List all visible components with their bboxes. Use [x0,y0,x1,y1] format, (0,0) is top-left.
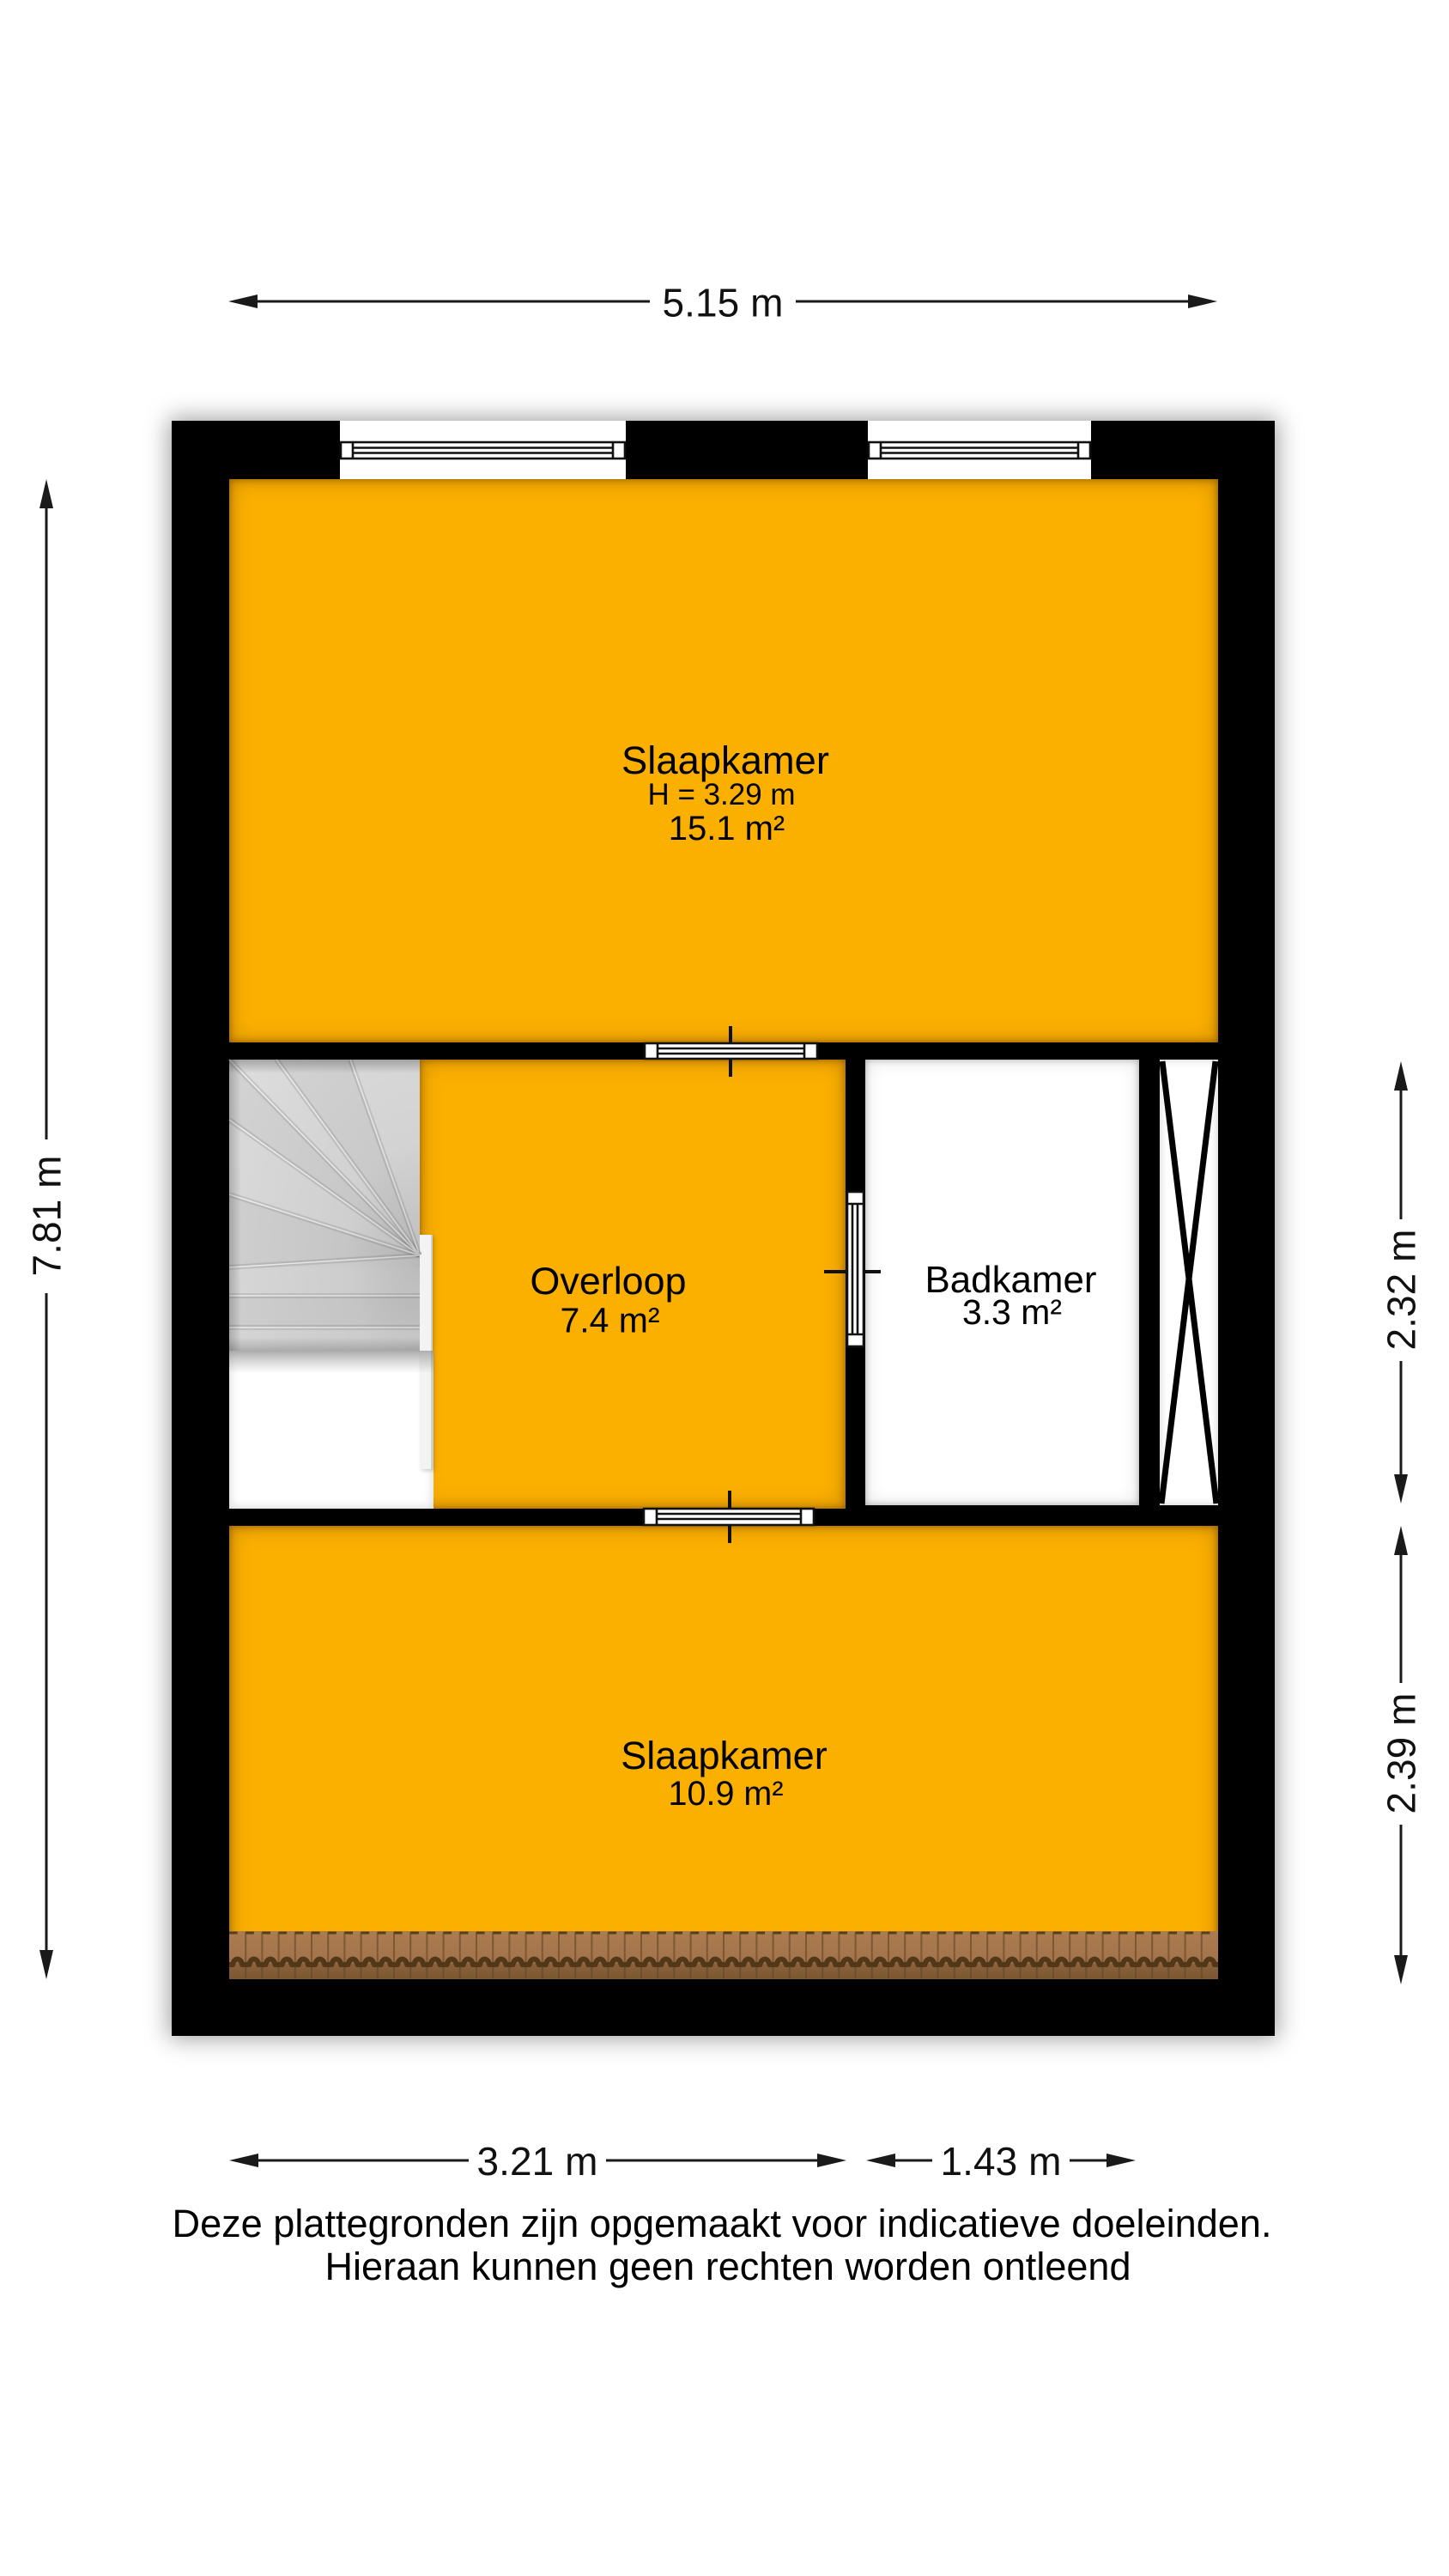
svg-text:10.9 m²: 10.9 m² [669,1775,784,1813]
svg-text:1.43 m: 1.43 m [941,2139,1062,2184]
svg-text:Deze plattegronden zijn opgema: Deze plattegronden zijn opgemaakt voor i… [173,2202,1272,2245]
svg-text:Hieraan kunnen geen rechten wo: Hieraan kunnen geen rechten worden ontle… [325,2245,1131,2288]
svg-text:Slaapkamer: Slaapkamer [621,1734,828,1777]
svg-text:Slaapkamer: Slaapkamer [621,738,829,782]
svg-text:H = 3.29 m: H = 3.29 m [648,778,796,811]
svg-text:2.32 m: 2.32 m [1379,1230,1424,1351]
svg-text:7.4 m²: 7.4 m² [561,1301,660,1340]
svg-text:2.39 m: 2.39 m [1379,1693,1424,1814]
svg-text:7.81 m: 7.81 m [25,1156,70,1277]
svg-text:Overloop: Overloop [530,1260,687,1303]
svg-text:3.21 m: 3.21 m [477,2139,598,2184]
svg-text:3.3 m²: 3.3 m² [962,1292,1062,1332]
svg-text:5.15 m: 5.15 m [663,281,784,325]
svg-text:15.1 m²: 15.1 m² [669,810,785,848]
